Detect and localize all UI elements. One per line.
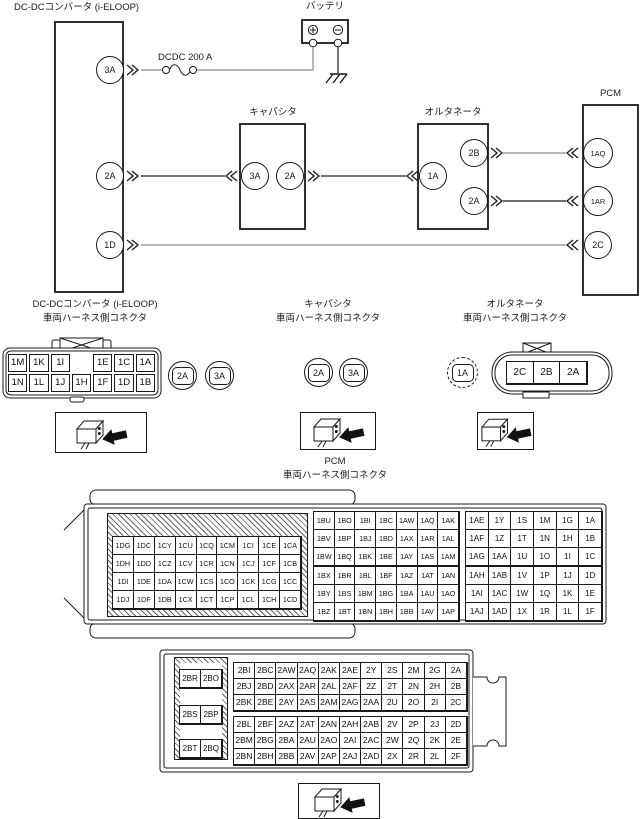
alternator-label: オルタネータ	[413, 107, 493, 119]
pin-cell-1aj: 1AJ	[466, 603, 489, 621]
pin-cell-2bo: 2BO	[201, 670, 222, 688]
pin-cell-1b: 1B	[579, 530, 602, 548]
pin-cell-2x: 2X	[382, 749, 403, 765]
pin-cell-2e: 2E	[446, 733, 467, 749]
pin-cell-1ck: 1CK	[238, 573, 259, 591]
pin-cell-2o: 2O	[403, 695, 424, 711]
capacitor-view-direction-box	[300, 412, 376, 450]
pin-alternator-1a: 1A	[419, 162, 447, 190]
pin-cell-1a: 1A	[136, 354, 155, 372]
pin-cell-2q: 2Q	[403, 733, 424, 749]
pin-cell-1cj: 1CJ	[238, 555, 259, 573]
pin-cell-1c: 1C	[114, 354, 133, 372]
pin-cell-1y: 1Y	[489, 512, 512, 530]
pin-cell-2at: 2AT	[298, 717, 319, 733]
pin-cell-1dj: 1DJ	[113, 591, 134, 609]
pin-cell-1cl: 1CL	[238, 591, 259, 609]
pin-cell-1e: 1E	[579, 585, 602, 603]
chevron-left-icon	[567, 196, 578, 206]
pin-cell-2ab: 2AB	[361, 717, 382, 733]
pcm-grid2-top: 2BI2BC2AW2AQ2AK2AE2Y2S2M2G2A2BJ2BD2AX2AR…	[233, 662, 468, 712]
pin-cell-2bm: 2BM	[234, 733, 255, 749]
pin-cell-2bf: 2BF	[255, 717, 276, 733]
pin-cell-1j: 1J	[557, 567, 580, 585]
pcm-grid1-right-bottom: 1AH1AB1V1P1J1D1AI1AC1W1Q1K1E1AJ1AD1X1R1L…	[465, 566, 603, 622]
pin-cell-1cz: 1CZ	[155, 555, 176, 573]
badge-dcdc-3a: 3A	[205, 361, 234, 390]
pin-cell-2ba: 2BA	[276, 733, 297, 749]
pin-cell-1au: 1AU	[418, 585, 439, 603]
pin-cell-1bk: 1BK	[355, 548, 376, 566]
pin-cell-1aw: 1AW	[397, 512, 418, 530]
pin-cell-2v: 2V	[382, 717, 403, 733]
pin-cell-1db: 1DB	[155, 591, 176, 609]
chevron-right-icon	[127, 65, 138, 75]
battery-label: バッテリ	[297, 1, 353, 13]
pin-cell-1ac: 1AC	[489, 585, 512, 603]
pin-cell-1at: 1AT	[418, 567, 439, 585]
pin-cell-1bz: 1BZ	[314, 603, 335, 621]
pin-cell-1f: 1F	[579, 603, 602, 621]
pin-cell-1az: 1AZ	[397, 567, 418, 585]
pin-cell-1ch: 1CH	[259, 591, 280, 609]
battery-terminal-positive	[309, 39, 317, 47]
pin-cell-1aq: 1AQ	[418, 512, 439, 530]
pin-cell-1t: 1T	[511, 530, 534, 548]
pin-cell-2m: 2M	[403, 663, 424, 679]
pin-cell-2br: 2BR	[180, 670, 201, 688]
pcm-grid2-left-pair2: 2BS2BP	[179, 705, 223, 725]
pin-cell-1bp: 1BP	[335, 530, 356, 548]
pin-cell-1cw: 1CW	[176, 573, 197, 591]
pin-cell-2ad: 2AD	[361, 749, 382, 765]
pin-cell-1cf: 1CF	[259, 555, 280, 573]
pin-cell-1ah: 1AH	[466, 567, 489, 585]
pin-cell-2bc: 2BC	[255, 663, 276, 679]
pin-cell-1i: 1I	[557, 548, 580, 566]
pin-cell-2a: 2A	[446, 663, 467, 679]
pin-cell-2ao: 2AO	[319, 733, 340, 749]
pin-cell-2k: 2K	[425, 733, 446, 749]
pin-cell-2bg: 2BG	[255, 733, 276, 749]
capacitor-harness-label: 車両ハーネス側コネクタ	[258, 313, 398, 325]
pin-capacitor-2a: 2A	[276, 162, 304, 190]
pin-pcm-2c: 2C	[584, 231, 612, 259]
pin-cell-1bc: 1BC	[376, 512, 397, 530]
pin-cell-1ci: 1CI	[238, 537, 259, 555]
pin-cell-2h: 2H	[425, 679, 446, 695]
pin-cell-1cc: 1CC	[280, 573, 301, 591]
pin-cell-1al: 1AL	[438, 530, 459, 548]
pin-cell-1df: 1DF	[134, 591, 155, 609]
pin-cell-2an: 2AN	[319, 717, 340, 733]
pin-cell-1z: 1Z	[489, 530, 512, 548]
pin-cell-1v: 1V	[511, 567, 534, 585]
pin-cell-2ai: 2AI	[340, 733, 361, 749]
pcm-grid1-mid-bottom: 1BX1BR1BL1BF1AZ1AT1AN1BY1BS1BM1BG1BA1AU1…	[313, 566, 460, 622]
pin-cell-1cb: 1CB	[280, 555, 301, 573]
pin-cell-1ce: 1CE	[259, 537, 280, 555]
dcdc-view-direction-box	[55, 412, 147, 453]
dcdc-connector-pin-grid: 1M1K1I1E1C1A1N1L1J1H1F1D1B	[8, 354, 155, 392]
pin-cell-1bf: 1BF	[376, 567, 397, 585]
pin-cell-1cy: 1CY	[155, 537, 176, 555]
pin-cell-1l: 1L	[29, 374, 48, 392]
pin-cell-2bd: 2BD	[255, 679, 276, 695]
pin-cell-1ba: 1BA	[397, 585, 418, 603]
pin-cell-1cp: 1CP	[217, 591, 238, 609]
pin-cell-1cr: 1CR	[197, 555, 218, 573]
pcm-grid1-left: 1DG1DC1CY1CU1CQ1CM1CI1CE1CA1DH1DD1CZ1CV1…	[112, 536, 302, 610]
pin-cell-1k: 1K	[29, 354, 48, 372]
wiring-diagram-page: DC-DCコンバータ (i-ELOOP) バッテリ DCDC 200 A キャパ…	[0, 0, 641, 819]
badge-dcdc-2a: 2A	[168, 361, 197, 390]
pin-capacitor-3a: 3A	[241, 162, 269, 190]
pin-cell-1bq: 1BQ	[335, 548, 356, 566]
pin-cell-1bh: 1BH	[376, 603, 397, 621]
pin-cell-2t: 2T	[382, 679, 403, 695]
pin-cell-1x: 1X	[511, 603, 534, 621]
pin-cell-1d: 1D	[579, 567, 602, 585]
pin-cell-2bt: 2BT	[180, 740, 201, 758]
dcdc-converter-label: DC-DCコンバータ (i-ELOOP)	[14, 2, 139, 14]
pin-cell-1e: 1E	[93, 354, 112, 372]
pin-cell-2bj: 2BJ	[234, 679, 255, 695]
chevron-right-icon	[308, 171, 319, 181]
pin-cell-2l: 2L	[425, 749, 446, 765]
pin-cell-1ao: 1AO	[438, 585, 459, 603]
pin-cell-1q: 1Q	[534, 585, 557, 603]
pin-cell-1ab: 1AB	[489, 567, 512, 585]
pin-cell-1j: 1J	[51, 374, 70, 392]
pin-cell-2ak: 2AK	[319, 663, 340, 679]
pin-cell-1bu: 1BU	[314, 512, 335, 530]
pin-cell-2bs: 2BS	[180, 706, 201, 724]
pin-cell-1bw: 1BW	[314, 548, 335, 566]
pin-cell-1bl: 1BL	[355, 567, 376, 585]
pin-cell-1ap: 1AP	[438, 603, 459, 621]
pin-cell-1ak: 1AK	[438, 512, 459, 530]
pin-cell-2af: 2AF	[340, 679, 361, 695]
pin-cell-1ct: 1CT	[197, 591, 218, 609]
pin-cell-1p: 1P	[534, 567, 557, 585]
chevron-left-icon	[407, 171, 418, 181]
chevron-left-icon	[567, 240, 578, 250]
pin-cell-1c: 1C	[579, 548, 602, 566]
pin-cell-1a: 1A	[579, 512, 602, 530]
pin-cell-1i: 1I	[51, 354, 70, 372]
pin-cell-2aa: 2AA	[361, 695, 382, 711]
pin-cell-1h: 1H	[72, 374, 91, 392]
pin-cell-2aw: 2AW	[276, 663, 297, 679]
alternator-connector-title: オルタネータ	[445, 299, 585, 311]
pin-pcm-1aq: 1AQ	[583, 138, 613, 168]
pin-cell-1cx: 1CX	[176, 591, 197, 609]
pin-cell-2bb: 2BB	[276, 749, 297, 765]
pin-cell-1ae: 1AE	[466, 512, 489, 530]
pin-cell-1av: 1AV	[418, 603, 439, 621]
pin-cell-1bd: 1BD	[376, 530, 397, 548]
pin-cell-2p: 2P	[403, 717, 424, 733]
badge-capacitor-3a: 3A	[339, 358, 368, 387]
chevron-right-icon	[127, 171, 138, 181]
pin-cell-1g: 1G	[557, 512, 580, 530]
pin-cell-2ar: 2AR	[298, 679, 319, 695]
pin-cell-1by: 1BY	[314, 585, 335, 603]
pin-cell-1da: 1DA	[155, 573, 176, 591]
pcm-grid2-bottom: 2BL2BF2AZ2AT2AN2AH2AB2V2P2J2D2BM2BG2BA2A…	[233, 716, 468, 766]
pin-cell-1ar: 1AR	[418, 530, 439, 548]
pin-cell-2ay: 2AY	[276, 695, 297, 711]
pin-cell-1n: 1N	[8, 374, 27, 392]
pcm-label: PCM	[583, 88, 638, 100]
pin-cell-2bk: 2BK	[234, 695, 255, 711]
pin-cell-2am: 2AM	[319, 695, 340, 711]
pin-cell-2ae: 2AE	[340, 663, 361, 679]
capacitor-label: キャパシタ	[238, 107, 308, 119]
capacitor-connector-title: キャパシタ	[258, 299, 398, 311]
pin-cell-1af: 1AF	[466, 530, 489, 548]
pin-cell-1cq: 1CQ	[197, 537, 218, 555]
badge-capacitor-2a: 2A	[304, 358, 333, 387]
pin-cell-2b: 2B	[534, 362, 561, 384]
pin-cell-1h: 1H	[557, 530, 580, 548]
pin-cell-2bq: 2BQ	[201, 740, 222, 758]
pin-cell-1u: 1U	[511, 548, 534, 566]
chevron-right-icon	[491, 148, 502, 158]
ground-icon	[326, 74, 347, 83]
pin-cell-2ac: 2AC	[361, 733, 382, 749]
pin-cell-2u: 2U	[382, 695, 403, 711]
pin-cell-1dg: 1DG	[113, 537, 134, 555]
pin-cell-1cm: 1CM	[217, 537, 238, 555]
pin-cell-2f: 2F	[446, 749, 467, 765]
pcm-grid1-right-top: 1AE1Y1S1M1G1A1AF1Z1T1N1H1B1AG1AA1U1O1I1C	[465, 511, 603, 567]
pin-cell-1aa: 1AA	[489, 548, 512, 566]
pin-cell-1ax: 1AX	[397, 530, 418, 548]
pin-cell-2bh: 2BH	[255, 749, 276, 765]
pin-cell-1be: 1BE	[376, 548, 397, 566]
chevron-right-icon	[127, 240, 138, 250]
pin-cell-1bg: 1BG	[376, 585, 397, 603]
pin-cell-1bo: 1BO	[335, 512, 356, 530]
pin-cell-1dd: 1DD	[134, 555, 155, 573]
pin-cell-1ag: 1AG	[466, 548, 489, 566]
pin-pcm-1ar: 1AR	[583, 186, 613, 216]
chevron-right-icon	[491, 196, 502, 206]
pin-cell-1bm: 1BM	[355, 585, 376, 603]
pcm-connector-title: PCM	[260, 456, 410, 468]
pin-cell-1cv: 1CV	[176, 555, 197, 573]
pin-cell-2w: 2W	[382, 733, 403, 749]
pcm-harness-label: 車両ハーネス側コネクタ	[260, 470, 410, 482]
pin-cell-1bb: 1BB	[397, 603, 418, 621]
pin-cell-1m: 1M	[8, 354, 27, 372]
pin-cell-1as: 1AS	[418, 548, 439, 566]
pcm-grid2-left-pair1: 2BR2BO	[179, 669, 223, 689]
pin-cell-1ad: 1AD	[489, 603, 512, 621]
pin-cell-1s: 1S	[511, 512, 534, 530]
pin-cell-2bi: 2BI	[234, 663, 255, 679]
pin-cell-2ap: 2AP	[319, 749, 340, 765]
pin-cell-empty	[72, 354, 91, 372]
pin-cell-1bi: 1BI	[355, 512, 376, 530]
pin-cell-1bx: 1BX	[314, 567, 335, 585]
pin-cell-1br: 1BR	[335, 567, 356, 585]
pin-cell-1w: 1W	[511, 585, 534, 603]
pin-cell-2a: 2A	[560, 362, 587, 384]
alternator-connector-pin-grid: 2C2B2A	[506, 361, 588, 385]
pin-cell-2b: 2B	[446, 679, 467, 695]
pin-cell-1l: 1L	[557, 603, 580, 621]
pin-cell-2bl: 2BL	[234, 717, 255, 733]
pin-cell-2n: 2N	[403, 679, 424, 695]
pin-cell-1bj: 1BJ	[355, 530, 376, 548]
pin-cell-2bp: 2BP	[201, 706, 222, 724]
pin-cell-2au: 2AU	[298, 733, 319, 749]
pin-cell-1am: 1AM	[438, 548, 459, 566]
pin-cell-1n: 1N	[534, 530, 557, 548]
pin-cell-1cd: 1CD	[280, 591, 301, 609]
pcm-view-direction-box	[298, 783, 380, 819]
wires	[141, 47, 566, 245]
chevron-left-icon	[226, 171, 237, 181]
pin-cell-2g: 2G	[425, 663, 446, 679]
pin-cell-2be: 2BE	[255, 695, 276, 711]
pin-cell-1ca: 1CA	[280, 537, 301, 555]
pin-cell-2aj: 2AJ	[340, 749, 361, 765]
fuse-icon	[163, 65, 197, 76]
pin-cell-2as: 2AS	[298, 695, 319, 711]
pcm-grid1-mid-top: 1BU1BO1BI1BC1AW1AQ1AK1BV1BP1BJ1BD1AX1AR1…	[313, 511, 460, 567]
pin-cell-2ah: 2AH	[340, 717, 361, 733]
pin-cell-1m: 1M	[534, 512, 557, 530]
pin-cell-2c: 2C	[446, 695, 467, 711]
alternator-harness-label: 車両ハーネス側コネクタ	[445, 313, 585, 325]
pin-cell-2s: 2S	[382, 663, 403, 679]
badge-alternator-1a: 1A	[447, 357, 478, 388]
pin-cell-1di: 1DI	[113, 573, 134, 591]
pin-cell-2bn: 2BN	[234, 749, 255, 765]
pin-cell-2j: 2J	[425, 717, 446, 733]
pin-cell-2i: 2I	[425, 695, 446, 711]
pin-cell-1d: 1D	[114, 374, 133, 392]
pin-cell-2av: 2AV	[298, 749, 319, 765]
pin-cell-1dh: 1DH	[113, 555, 134, 573]
pin-cell-2aq: 2AQ	[298, 663, 319, 679]
pin-cell-1de: 1DE	[134, 573, 155, 591]
pcm-grid2-left-pair3: 2BT2BQ	[179, 739, 223, 759]
pin-cell-2al: 2AL	[319, 679, 340, 695]
pin-cell-1cs: 1CS	[197, 573, 218, 591]
pin-cell-1cu: 1CU	[176, 537, 197, 555]
pin-dcdc-3a: 3A	[96, 56, 124, 84]
pin-cell-1f: 1F	[93, 374, 112, 392]
pin-dcdc-2a: 2A	[96, 162, 124, 190]
pin-alternator-2b: 2B	[460, 139, 488, 167]
pin-cell-1cg: 1CG	[259, 573, 280, 591]
pin-cell-1k: 1K	[557, 585, 580, 603]
pin-cell-1bn: 1BN	[355, 603, 376, 621]
pin-cell-2ax: 2AX	[276, 679, 297, 695]
pin-cell-1r: 1R	[534, 603, 557, 621]
pin-alternator-2a: 2A	[460, 187, 488, 215]
pin-cell-2r: 2R	[403, 749, 424, 765]
fuse-label: DCDC 200 A	[158, 52, 212, 64]
pin-cell-2c: 2C	[507, 362, 534, 384]
pin-cell-2az: 2AZ	[276, 717, 297, 733]
pin-cell-2y: 2Y	[361, 663, 382, 679]
chevron-left-icon	[567, 148, 578, 158]
dcdc-connector-title: DC-DCコンバータ (i-ELOOP)	[0, 299, 190, 311]
pin-cell-1cn: 1CN	[217, 555, 238, 573]
pin-cell-1bs: 1BS	[335, 585, 356, 603]
pin-cell-1bv: 1BV	[314, 530, 335, 548]
pin-dcdc-1d: 1D	[96, 231, 124, 259]
pin-cell-2z: 2Z	[361, 679, 382, 695]
pin-cell-1ai: 1AI	[466, 585, 489, 603]
pin-cell-1o: 1O	[534, 548, 557, 566]
battery-terminal-negative	[334, 39, 342, 47]
pin-cell-1dc: 1DC	[134, 537, 155, 555]
pin-cell-2d: 2D	[446, 717, 467, 733]
dcdc-harness-label: 車両ハーネス側コネクタ	[0, 313, 190, 325]
pin-cell-1bt: 1BT	[335, 603, 356, 621]
pin-cell-2ag: 2AG	[340, 695, 361, 711]
pin-cell-1b: 1B	[136, 374, 155, 392]
pin-cell-1ay: 1AY	[397, 548, 418, 566]
pin-cell-1an: 1AN	[438, 567, 459, 585]
alternator-view-direction-box	[477, 412, 534, 450]
pin-cell-1co: 1CO	[217, 573, 238, 591]
